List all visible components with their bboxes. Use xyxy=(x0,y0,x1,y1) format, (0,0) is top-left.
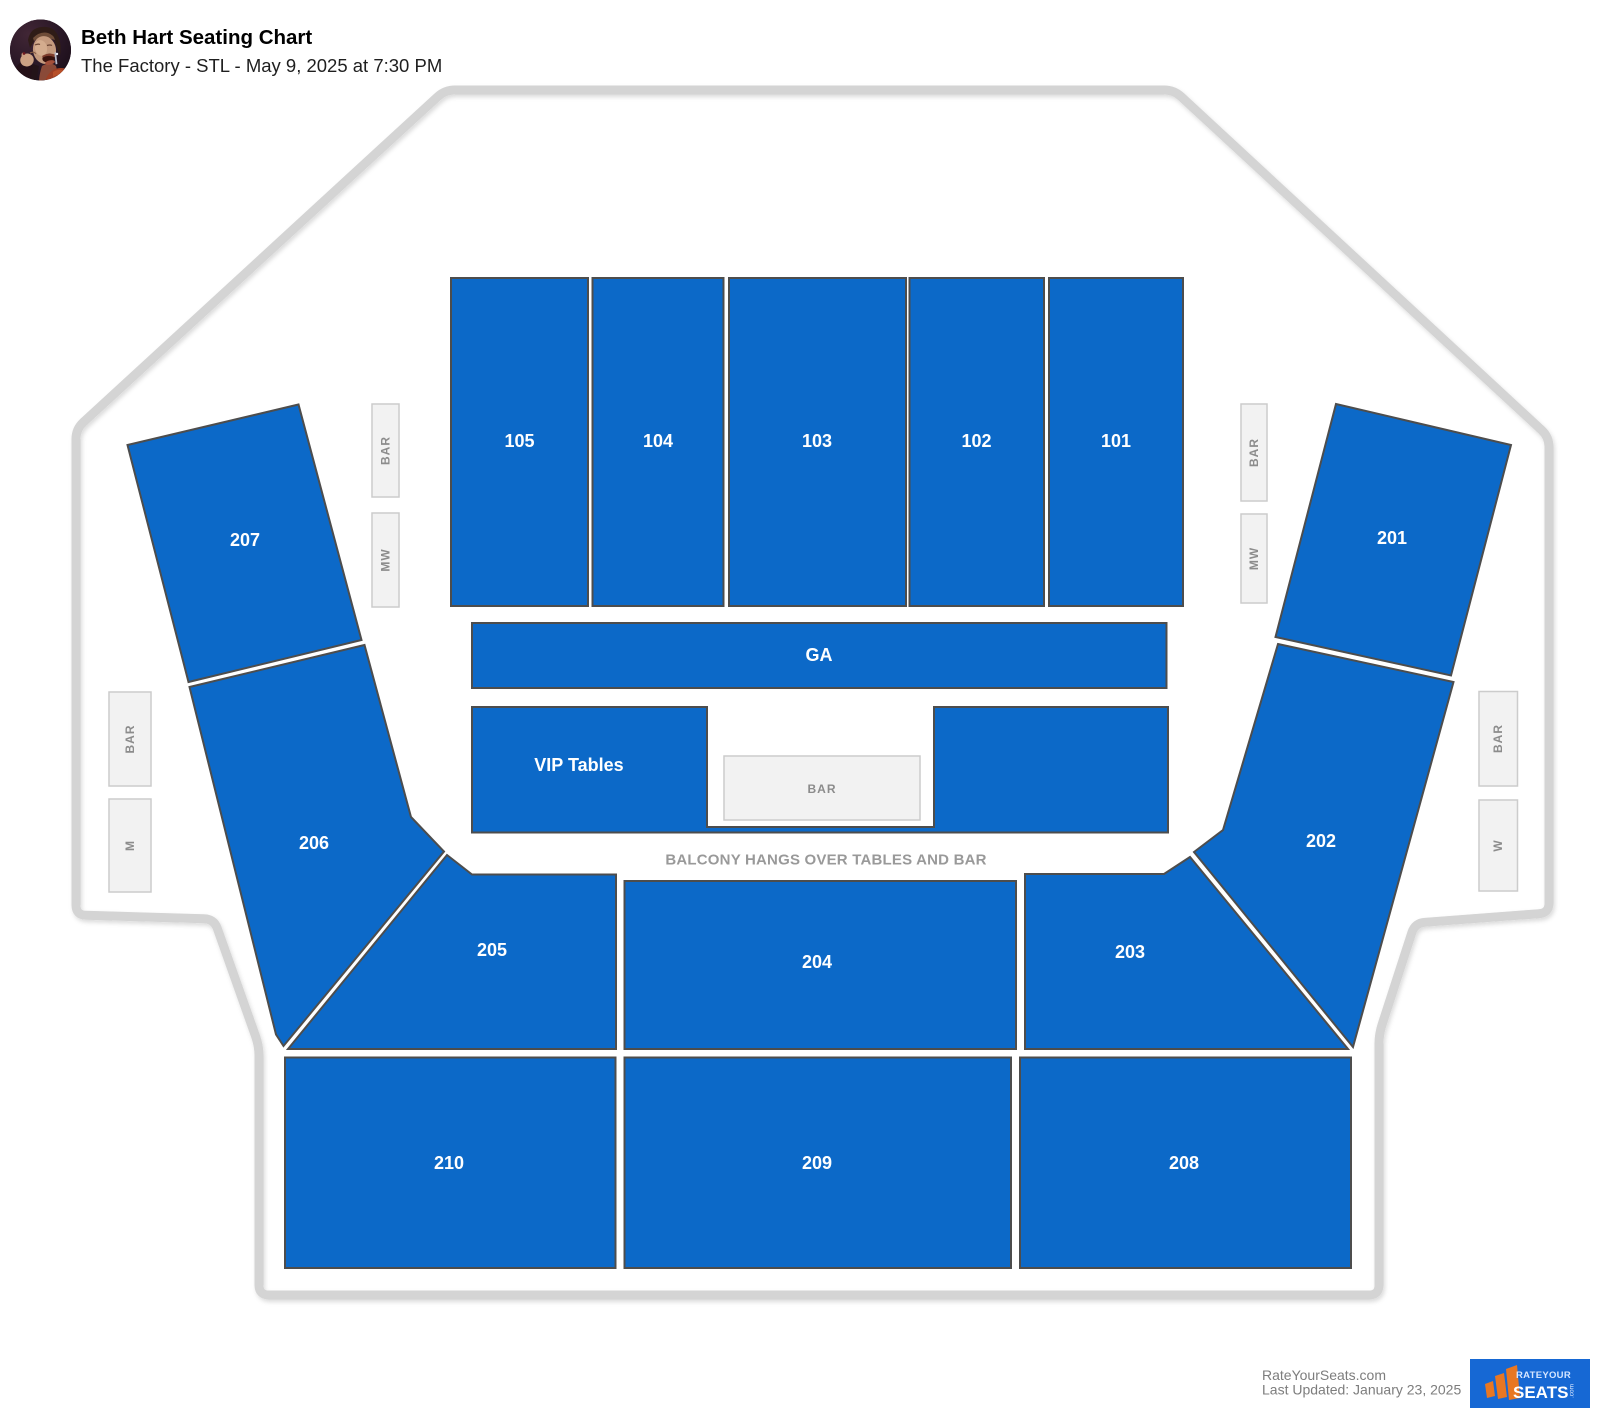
svg-text:210: 210 xyxy=(434,1153,464,1173)
svg-text:103: 103 xyxy=(802,431,832,451)
svg-text:BALCONY HANGS OVER TABLES AND: BALCONY HANGS OVER TABLES AND BAR xyxy=(665,852,986,869)
svg-text:BAR: BAR xyxy=(123,725,137,754)
svg-text:BAR: BAR xyxy=(379,436,393,465)
svg-text:207: 207 xyxy=(230,530,260,550)
svg-text:204: 204 xyxy=(802,952,832,972)
svg-text:SEATS: SEATS xyxy=(1513,1383,1568,1402)
svg-text:209: 209 xyxy=(802,1153,832,1173)
svg-text:W: W xyxy=(1491,839,1505,851)
svg-text:203: 203 xyxy=(1115,942,1145,962)
svg-text:.com: .com xyxy=(1569,1384,1576,1398)
svg-text:Last Updated: January 23, 2025: Last Updated: January 23, 2025 xyxy=(1262,1382,1461,1398)
svg-text:202: 202 xyxy=(1306,831,1336,851)
svg-text:BAR: BAR xyxy=(1247,438,1261,467)
svg-text:MW: MW xyxy=(1247,547,1261,570)
svg-text:208: 208 xyxy=(1169,1153,1199,1173)
svg-text:M: M xyxy=(123,840,137,851)
svg-text:201: 201 xyxy=(1377,528,1407,548)
svg-text:BAR: BAR xyxy=(1491,724,1505,753)
svg-text:RATEYOUR: RATEYOUR xyxy=(1516,1370,1571,1381)
svg-text:101: 101 xyxy=(1101,431,1131,451)
svg-text:GA: GA xyxy=(806,645,833,665)
svg-text:102: 102 xyxy=(961,431,991,451)
svg-text:MW: MW xyxy=(379,548,393,571)
svg-text:205: 205 xyxy=(477,940,507,960)
svg-text:Beth Hart Seating Chart: Beth Hart Seating Chart xyxy=(81,26,312,49)
svg-text:206: 206 xyxy=(299,833,329,853)
svg-text:VIP Tables: VIP Tables xyxy=(534,755,623,775)
svg-text:BAR: BAR xyxy=(808,782,837,796)
svg-text:104: 104 xyxy=(643,431,673,451)
svg-text:The Factory - STL - May 9, 202: The Factory - STL - May 9, 2025 at 7:30 … xyxy=(81,55,442,76)
svg-text:105: 105 xyxy=(504,431,534,451)
